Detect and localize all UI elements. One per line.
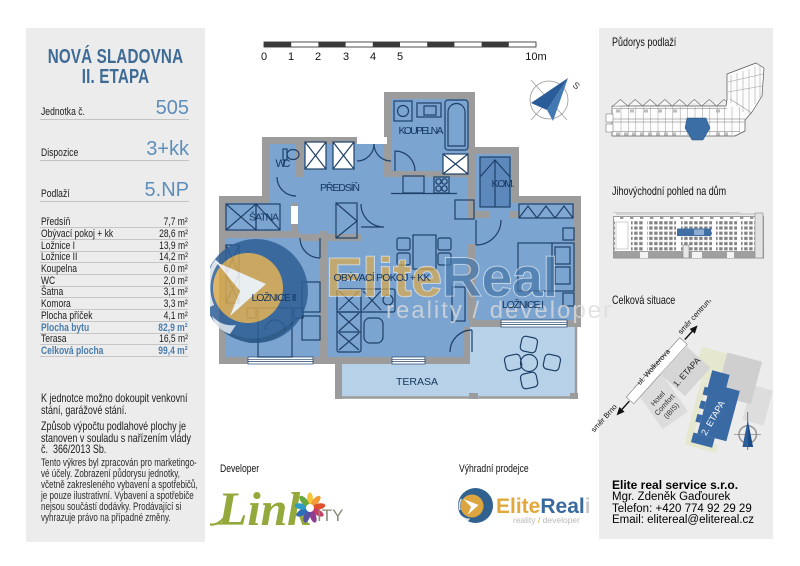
svg-text:reality / developer: reality / developer [386, 297, 611, 324]
svg-text:PŘEDSÍŇ: PŘEDSÍŇ [320, 181, 360, 194]
svg-text:reality / developer: reality / developer [513, 515, 580, 525]
svg-text:WC: WC [276, 158, 291, 170]
svg-text:5: 5 [397, 51, 403, 63]
svg-text:10m: 10m [525, 51, 546, 63]
svg-text:ITY: ITY [317, 506, 343, 525]
svg-text:1: 1 [288, 51, 294, 63]
svg-text:Link: Link [217, 483, 311, 536]
svg-text:KOUPELNA: KOUPELNA [399, 125, 444, 137]
svg-text:LOŽNICE I: LOŽNICE I [502, 298, 544, 311]
svg-text:OBÝVACÍ POKOJ + KK: OBÝVACÍ POKOJ + KK [334, 271, 431, 284]
svg-text:3: 3 [343, 51, 349, 63]
svg-text:LOŽNICE II: LOŽNICE II [252, 291, 297, 304]
svg-text:0: 0 [261, 51, 267, 63]
svg-text:TERASA: TERASA [396, 376, 438, 388]
svg-text:ŠATNA: ŠATNA [249, 211, 279, 224]
svg-text:KOM.: KOM. [492, 178, 515, 190]
svg-text:S: S [571, 80, 582, 92]
svg-text:2: 2 [315, 51, 321, 63]
svg-text:4: 4 [370, 51, 376, 63]
